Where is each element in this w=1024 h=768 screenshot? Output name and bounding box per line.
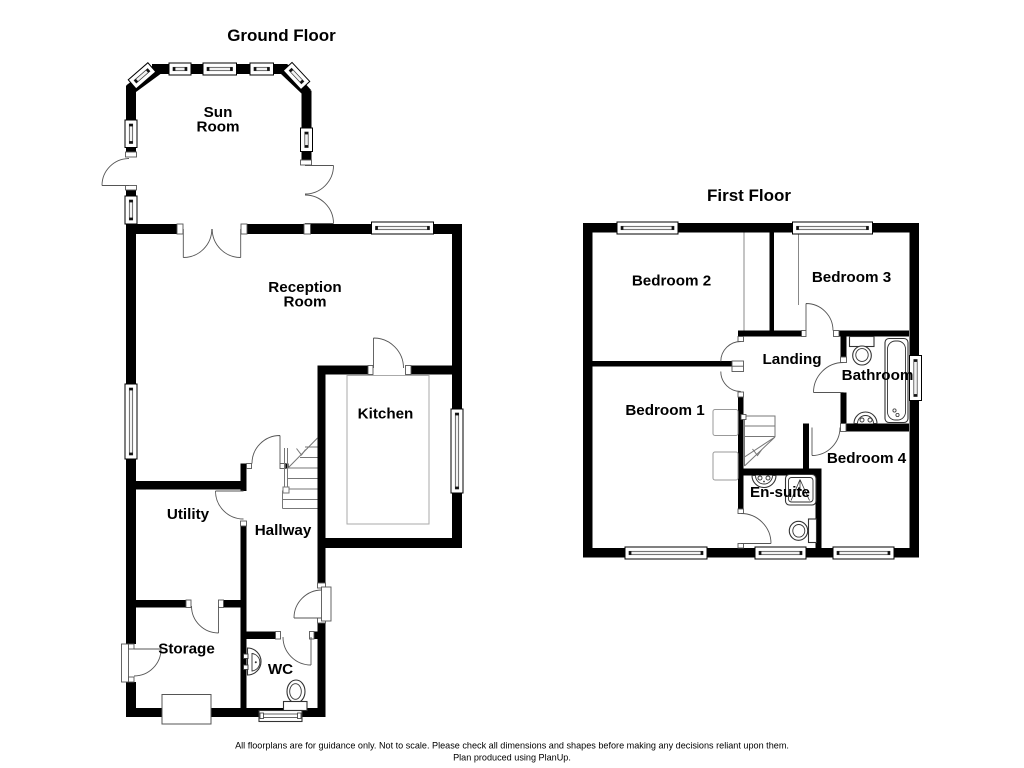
svg-text:Landing: Landing	[762, 351, 821, 368]
svg-text:Storage: Storage	[158, 641, 215, 658]
svg-text:Bedroom 1: Bedroom 1	[625, 402, 705, 419]
svg-text:WC: WC	[268, 661, 293, 678]
svg-text:Hallway: Hallway	[255, 522, 312, 539]
svg-text:Room: Room	[283, 294, 326, 311]
svg-text:All floorplans are for guidanc: All floorplans are for guidance only. No…	[235, 741, 789, 751]
svg-text:First Floor: First Floor	[707, 186, 791, 205]
svg-text:Ground Floor: Ground Floor	[227, 26, 336, 45]
svg-text:Bedroom 4: Bedroom 4	[827, 450, 907, 467]
svg-text:Kitchen: Kitchen	[358, 406, 414, 423]
svg-text:Room: Room	[196, 119, 239, 136]
svg-text:Bedroom 2: Bedroom 2	[632, 273, 711, 290]
svg-text:Bedroom 3: Bedroom 3	[812, 269, 891, 286]
svg-text:En-suite: En-suite	[750, 484, 810, 501]
svg-text:Bathroom: Bathroom	[842, 367, 914, 384]
svg-text:Plan produced using PlanUp.: Plan produced using PlanUp.	[453, 753, 571, 763]
svg-text:Utility: Utility	[167, 506, 210, 523]
